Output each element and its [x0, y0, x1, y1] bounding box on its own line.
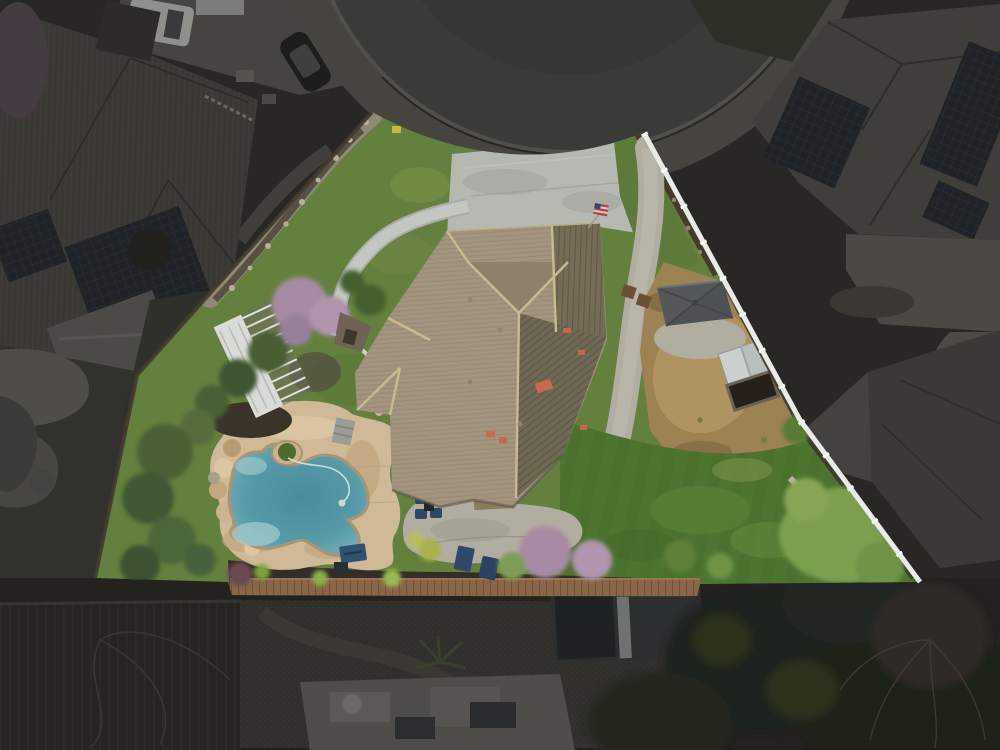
yard-clutter	[262, 94, 276, 104]
rock-bed-dim	[830, 286, 914, 318]
blossom-tree	[519, 526, 571, 578]
gazebo	[657, 281, 733, 326]
yellow-item	[392, 126, 401, 133]
white-van	[196, 0, 244, 15]
blossom-tree	[572, 540, 612, 580]
aerial-photo-canvas	[0, 0, 1000, 750]
red-shrub	[228, 562, 252, 586]
pool-shallow-shelf	[232, 522, 280, 546]
ac-unit-dim	[342, 694, 362, 714]
island-bush	[278, 443, 296, 461]
wood-deck-walkway	[230, 578, 700, 596]
aerial-photo	[0, 0, 1000, 750]
dark-bush	[129, 229, 171, 271]
deck-item	[334, 562, 348, 572]
pool-cleaner	[339, 500, 346, 507]
pool-lounger	[339, 543, 367, 563]
yard-clutter	[236, 70, 254, 82]
dim-spa	[30, 470, 54, 494]
